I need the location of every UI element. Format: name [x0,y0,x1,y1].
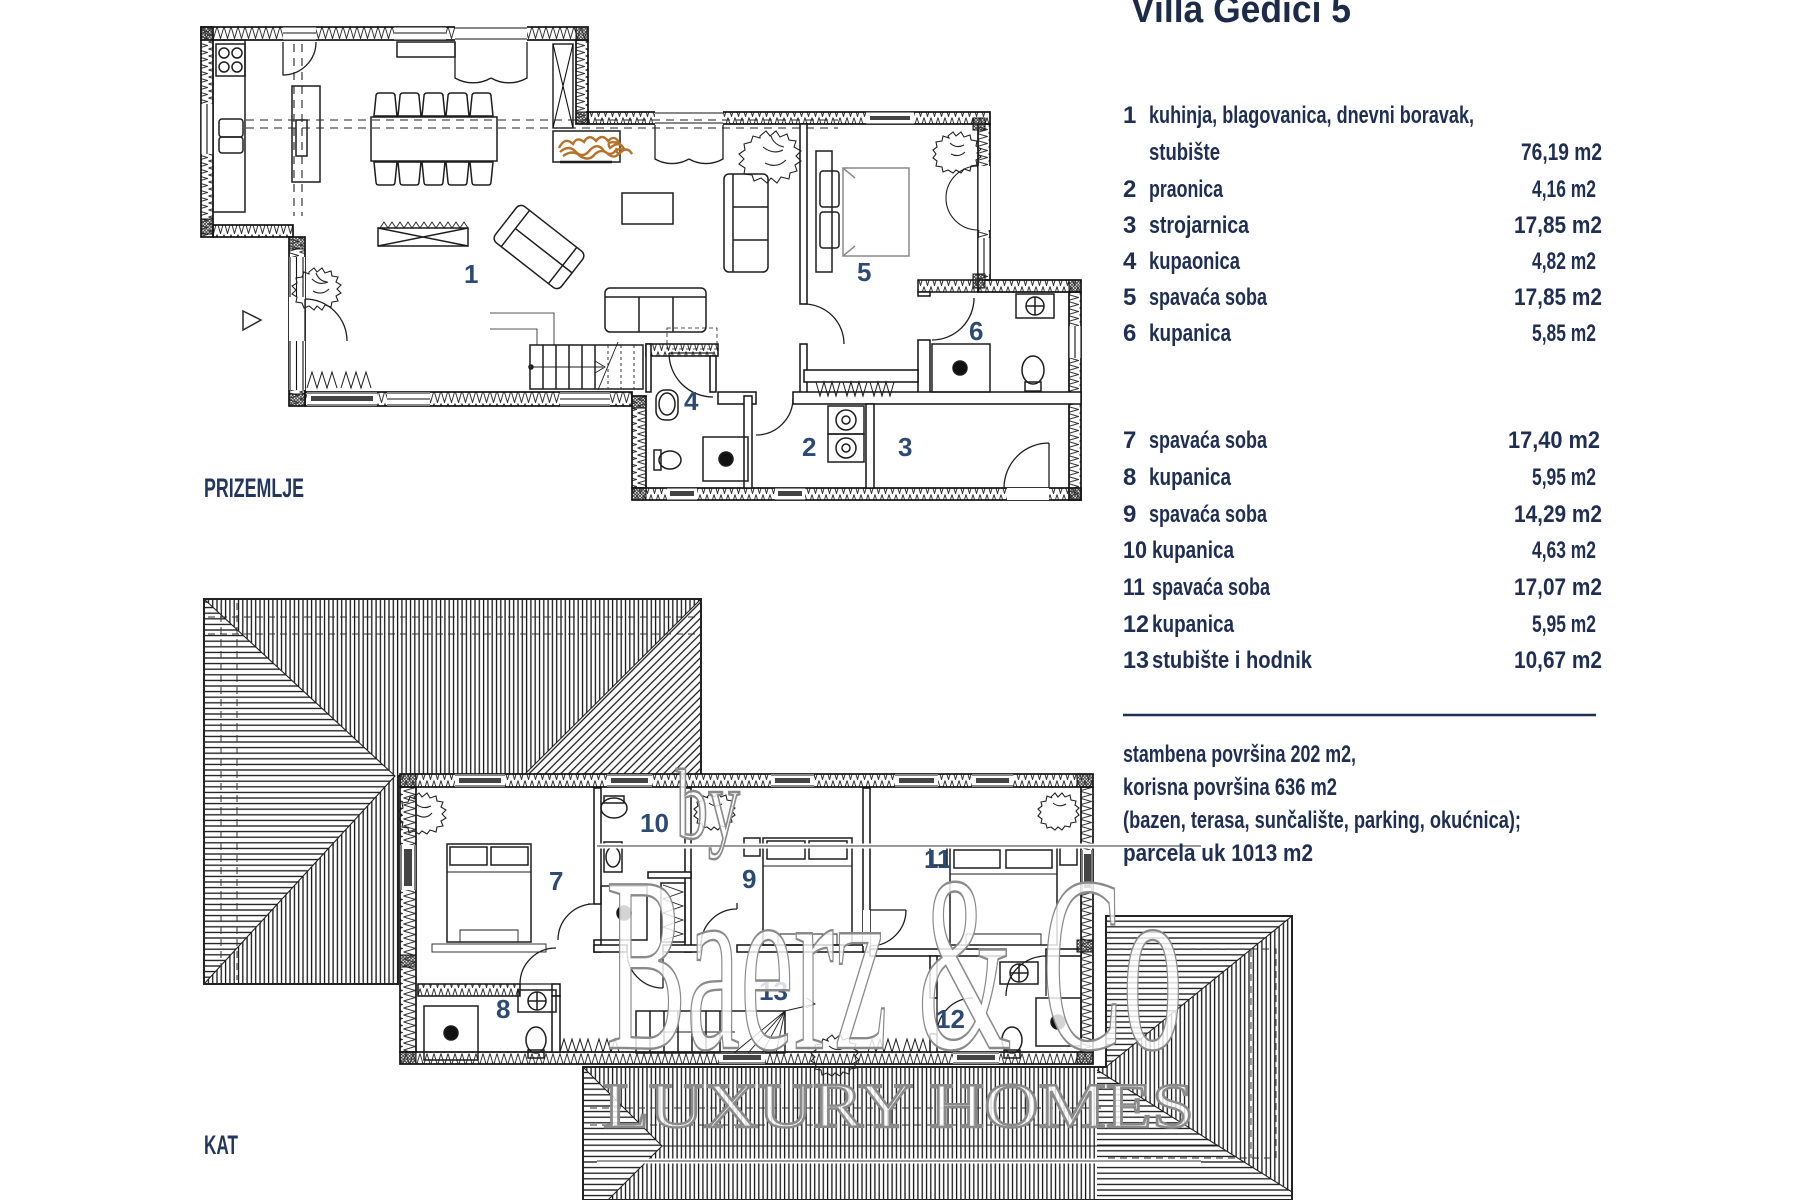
svg-text:1: 1 [1123,102,1136,129]
svg-text:(bazen, terasa, sunčalište, pa: (bazen, terasa, sunčalište, parking, oku… [1123,807,1521,834]
svg-text:8: 8 [496,994,510,1024]
svg-text:17,85 m2: 17,85 m2 [1514,284,1602,311]
svg-text:4: 4 [1123,248,1137,275]
svg-text:stambena površina 202 m2,: stambena površina 202 m2, [1123,741,1356,768]
svg-text:6: 6 [1123,320,1136,347]
svg-text:Villa Gedici 5: Villa Gedici 5 [1131,0,1351,31]
svg-text:spavaća soba: spavaća soba [1149,427,1267,454]
svg-text:spavaća soba: spavaća soba [1149,284,1267,311]
svg-text:9: 9 [1123,501,1136,528]
svg-text:7: 7 [549,866,563,896]
svg-text:17,85 m2: 17,85 m2 [1514,212,1602,239]
svg-text:10,67 m2: 10,67 m2 [1514,647,1602,674]
svg-text:stubište: stubište [1149,139,1220,166]
svg-text:7: 7 [1123,427,1136,454]
svg-text:5,95 m2: 5,95 m2 [1532,464,1596,491]
svg-text:17,40 m2: 17,40 m2 [1508,427,1600,454]
svg-text:4: 4 [684,386,699,416]
svg-text:6: 6 [969,316,983,346]
svg-text:13: 13 [1123,647,1149,674]
svg-text:14,29 m2: 14,29 m2 [1514,501,1602,528]
svg-text:4,16 m2: 4,16 m2 [1532,176,1596,203]
svg-text:10: 10 [1123,537,1147,564]
svg-text:2: 2 [802,432,816,462]
svg-text:2: 2 [1123,176,1136,203]
svg-text:kupanica: kupanica [1152,611,1235,638]
svg-text:3: 3 [1123,212,1136,239]
svg-text:PRIZEMLJE: PRIZEMLJE [204,473,304,503]
svg-text:spavaća soba: spavaća soba [1149,501,1267,528]
svg-text:stubište i hodnik: stubište i hodnik [1152,647,1313,674]
svg-text:76,19 m2: 76,19 m2 [1521,139,1602,166]
svg-text:kupaonica: kupaonica [1149,248,1240,275]
svg-text:8: 8 [1123,464,1136,491]
svg-text:17,07 m2: 17,07 m2 [1514,574,1602,601]
svg-text:kuhinja, blagovanica, dnevni b: kuhinja, blagovanica, dnevni boravak, [1149,102,1474,129]
svg-text:12: 12 [1123,611,1149,638]
svg-text:LUXURY HOMES: LUXURY HOMES [603,1070,1194,1141]
svg-text:korisna površina 636 m2: korisna površina 636 m2 [1123,774,1337,801]
svg-text:1: 1 [464,259,478,289]
svg-text:kupanica: kupanica [1149,320,1232,347]
svg-text:5,95 m2: 5,95 m2 [1532,611,1596,638]
svg-text:4,82 m2: 4,82 m2 [1532,248,1596,275]
svg-text:praonica: praonica [1149,176,1223,203]
svg-text:spavaća soba: spavaća soba [1152,574,1270,601]
svg-text:4,63 m2: 4,63 m2 [1532,537,1596,564]
svg-text:11: 11 [1123,574,1145,601]
svg-text:parcela uk 1013 m2: parcela uk 1013 m2 [1123,840,1313,867]
svg-text:5,85 m2: 5,85 m2 [1532,320,1596,347]
svg-text:Baerz & Co: Baerz & Co [606,826,1183,1103]
svg-text:5: 5 [857,257,871,287]
svg-text:3: 3 [898,432,912,462]
svg-text:KAT: KAT [204,1130,238,1160]
svg-text:kupanica: kupanica [1152,537,1235,564]
svg-text:5: 5 [1123,284,1136,311]
svg-text:strojarnica: strojarnica [1149,212,1250,239]
svg-text:kupanica: kupanica [1149,464,1232,491]
